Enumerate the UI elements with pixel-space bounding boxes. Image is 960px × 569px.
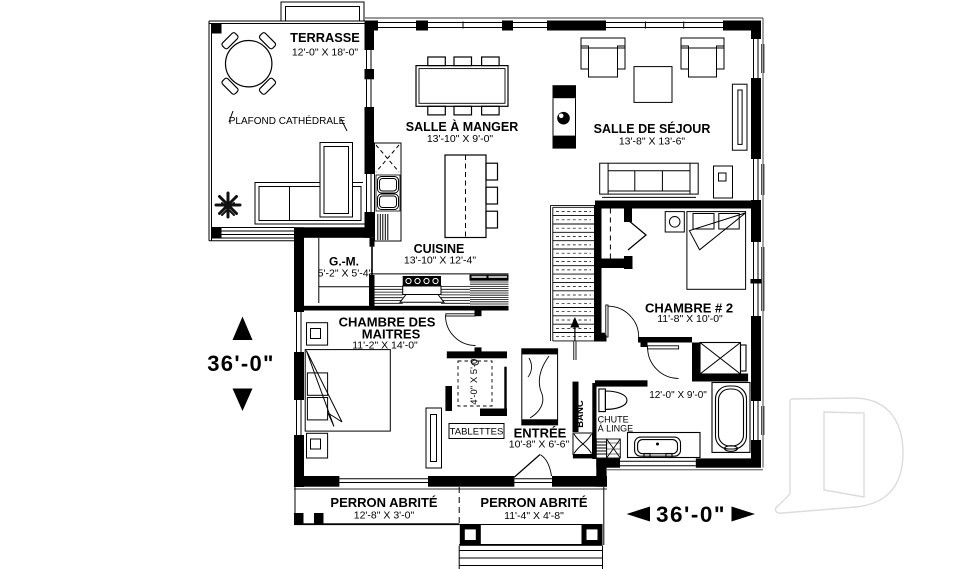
svg-text:5'-2" X 5'-4": 5'-2" X 5'-4" — [318, 268, 373, 280]
svg-text:BANC: BANC — [575, 400, 586, 428]
svg-text:11'-4" X 4'-8": 11'-4" X 4'-8" — [504, 510, 564, 522]
svg-text:PERRON ABRITÉ: PERRON ABRITÉ — [480, 495, 587, 510]
svg-text:G.-M.: G.-M. — [329, 255, 359, 269]
svg-text:À LINGE: À LINGE — [598, 424, 634, 434]
svg-text:13'-10" X 9'-0": 13'-10" X 9'-0" — [427, 133, 494, 145]
svg-text:TABLETTES: TABLETTES — [450, 427, 504, 438]
svg-text:11'-8" X 10'-0": 11'-8" X 10'-0" — [657, 313, 723, 325]
svg-text:13'-8" X 13'-6": 13'-8" X 13'-6" — [619, 136, 686, 148]
svg-text:4'-0" X 5'-0": 4'-0" X 5'-0" — [469, 355, 480, 404]
svg-text:11'-2" X 14'-0": 11'-2" X 14'-0" — [352, 340, 418, 352]
svg-text:10'-8" X 6'-6": 10'-8" X 6'-6" — [509, 439, 570, 451]
svg-text:36'-0": 36'-0" — [656, 502, 726, 527]
svg-text:TERRASSE: TERRASSE — [290, 30, 360, 45]
svg-text:36'-0": 36'-0" — [207, 351, 275, 376]
svg-text:PERRON ABRITÉ: PERRON ABRITÉ — [330, 495, 437, 510]
svg-text:13'-10" X 12'-4": 13'-10" X 12'-4" — [404, 255, 476, 267]
svg-text:SALLE À MANGER: SALLE À MANGER — [406, 119, 519, 134]
svg-text:12'-0" X 18'-0": 12'-0" X 18'-0" — [292, 47, 359, 59]
svg-text:12'-0" X 9'-0": 12'-0" X 9'-0" — [649, 390, 707, 401]
svg-text:SALLE DE SÉJOUR: SALLE DE SÉJOUR — [594, 121, 711, 136]
svg-text:12'-8" X 3'-0": 12'-8" X 3'-0" — [354, 510, 415, 522]
svg-text:PLAFOND CATHÉDRALE: PLAFOND CATHÉDRALE — [229, 114, 346, 127]
